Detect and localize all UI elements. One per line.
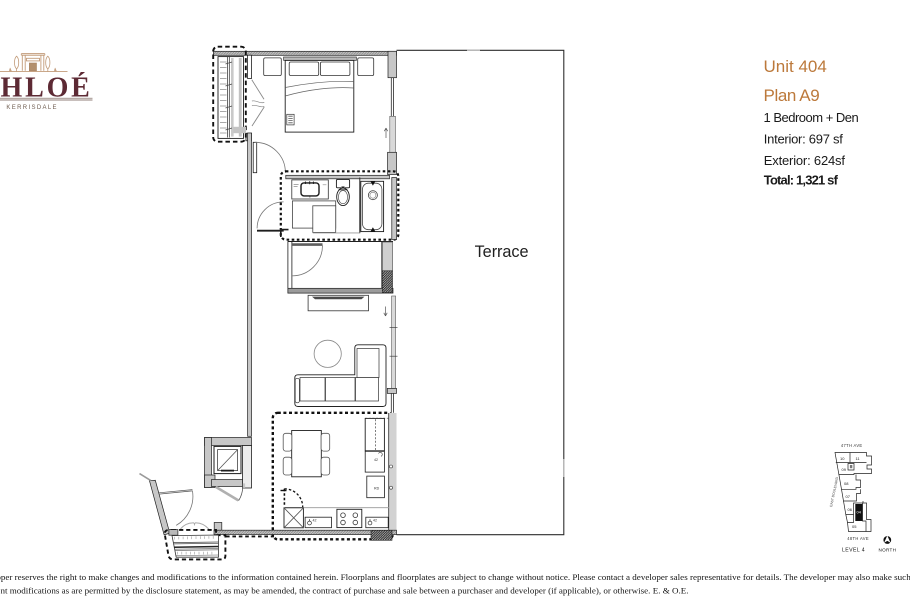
svg-text:Plan A9: Plan A9 [764,86,820,105]
svg-text:09: 09 [842,467,847,472]
svg-text:Terrace: Terrace [475,243,529,261]
svg-text:08: 08 [844,481,849,486]
svg-text:10: 10 [840,456,845,461]
svg-text:nt modifications as are permit: nt modifications as are permitted by the… [1,586,689,596]
svg-text:05: 05 [852,524,857,529]
svg-text:RD: RD [374,487,380,491]
svg-text:07: 07 [846,494,851,499]
svg-text:42: 42 [374,458,378,462]
svg-text:42: 42 [313,519,317,523]
svg-text:The developer reserves the rig: The developer reserves the right to make… [0,572,910,582]
svg-text:Interior: 697 sf: Interior: 697 sf [764,132,843,147]
svg-text:NORTH: NORTH [879,548,897,553]
svg-text:Unit 404: Unit 404 [764,57,827,76]
svg-text:42: 42 [373,519,377,523]
svg-text:06: 06 [848,507,853,512]
svg-text:48TH AVE: 48TH AVE [847,536,869,541]
svg-text:04: 04 [857,510,862,515]
svg-text:LEVEL 4: LEVEL 4 [842,548,865,554]
svg-text:Total: 1,321 sf: Total: 1,321 sf [764,172,839,187]
svg-text:1 Bedroom + Den: 1 Bedroom + Den [764,110,859,125]
svg-text:CHLOÉ: CHLOÉ [0,72,93,103]
svg-text:KERRISDALE: KERRISDALE [6,105,58,111]
svg-text:Exterior: 624sf: Exterior: 624sf [764,153,846,168]
svg-text:47TH AVE: 47TH AVE [841,443,863,448]
